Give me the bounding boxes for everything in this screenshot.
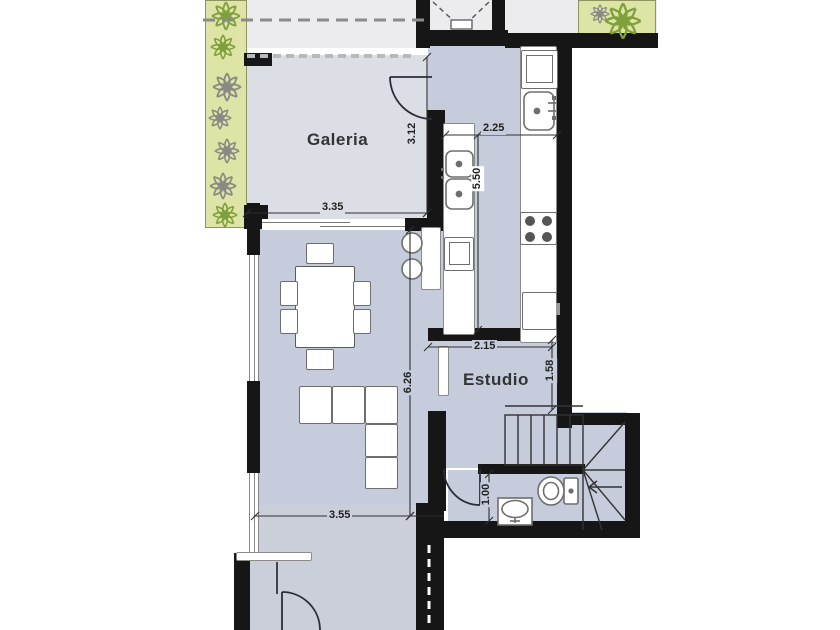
dimension-label-living-width: 3.55 — [327, 509, 352, 522]
wall-under-shaft — [428, 30, 508, 46]
sofa-cushion — [365, 457, 398, 489]
entry-counter — [236, 552, 312, 561]
fridge-handle — [556, 303, 560, 315]
stove — [520, 212, 557, 245]
dimension-label-kitchen-width: 2.25 — [481, 122, 506, 135]
appliance-inner — [526, 55, 553, 83]
chair — [306, 243, 334, 264]
chair — [353, 281, 371, 306]
window-glass-line — [254, 255, 255, 381]
dimension-label-estudio-depth: 1.58 — [544, 358, 557, 383]
kitchen-appliance-top — [521, 50, 558, 89]
wall-kitchen-right — [557, 33, 572, 428]
window-left-lower — [249, 473, 259, 553]
breakfast-bar — [421, 227, 441, 290]
chair — [280, 309, 298, 334]
bathroom-floor — [448, 470, 585, 528]
wall-left-3 — [234, 553, 250, 630]
dimension-label-living-depth: 6.26 — [402, 370, 415, 395]
room-label-galeria: Galeria — [307, 130, 368, 150]
dimension-label-estudio-width: 2.15 — [472, 340, 497, 353]
wall-entry-right — [416, 503, 444, 630]
window-left-upper — [249, 255, 259, 381]
sofa-cushion — [365, 424, 398, 457]
dimension-label-galeria-width: 3.35 — [320, 201, 345, 214]
wall-bath-bottom — [444, 521, 640, 538]
oven — [444, 237, 474, 271]
oven-inner — [449, 242, 470, 265]
entry-partition — [276, 562, 278, 594]
wall-galeria-nw — [244, 53, 272, 66]
sliding-door-galeria-living — [262, 219, 405, 230]
chair — [280, 281, 298, 306]
chair — [306, 349, 334, 370]
window-glass-line — [254, 473, 255, 553]
dimension-label-kitchen-depth: 5.50 — [471, 166, 484, 191]
sliding-panel-line — [320, 226, 405, 227]
wall-living-stair — [428, 411, 446, 511]
floor-plan: Galeria Estudio 3.35 3.12 2.25 5.50 6.26… — [0, 0, 840, 630]
wall-stair-right — [625, 413, 640, 530]
sofa-cushion — [332, 386, 365, 424]
fridge — [522, 292, 557, 330]
wall-bath-top — [478, 464, 585, 474]
dimension-label-galeria-depth: 3.12 — [406, 121, 419, 146]
wall-left-2 — [247, 381, 260, 473]
estudio-desk — [438, 346, 449, 396]
kitchen-counter-left — [443, 123, 475, 335]
room-label-estudio: Estudio — [463, 370, 529, 390]
planter-left — [205, 0, 247, 228]
chair — [353, 309, 371, 334]
dining-table — [295, 266, 355, 348]
sliding-panel-line — [262, 222, 350, 223]
dimension-label-bath-depth: 1.00 — [480, 482, 493, 507]
sofa-cushion — [365, 386, 398, 424]
wall-left-1 — [247, 203, 260, 255]
sofa-cushion — [299, 386, 332, 424]
